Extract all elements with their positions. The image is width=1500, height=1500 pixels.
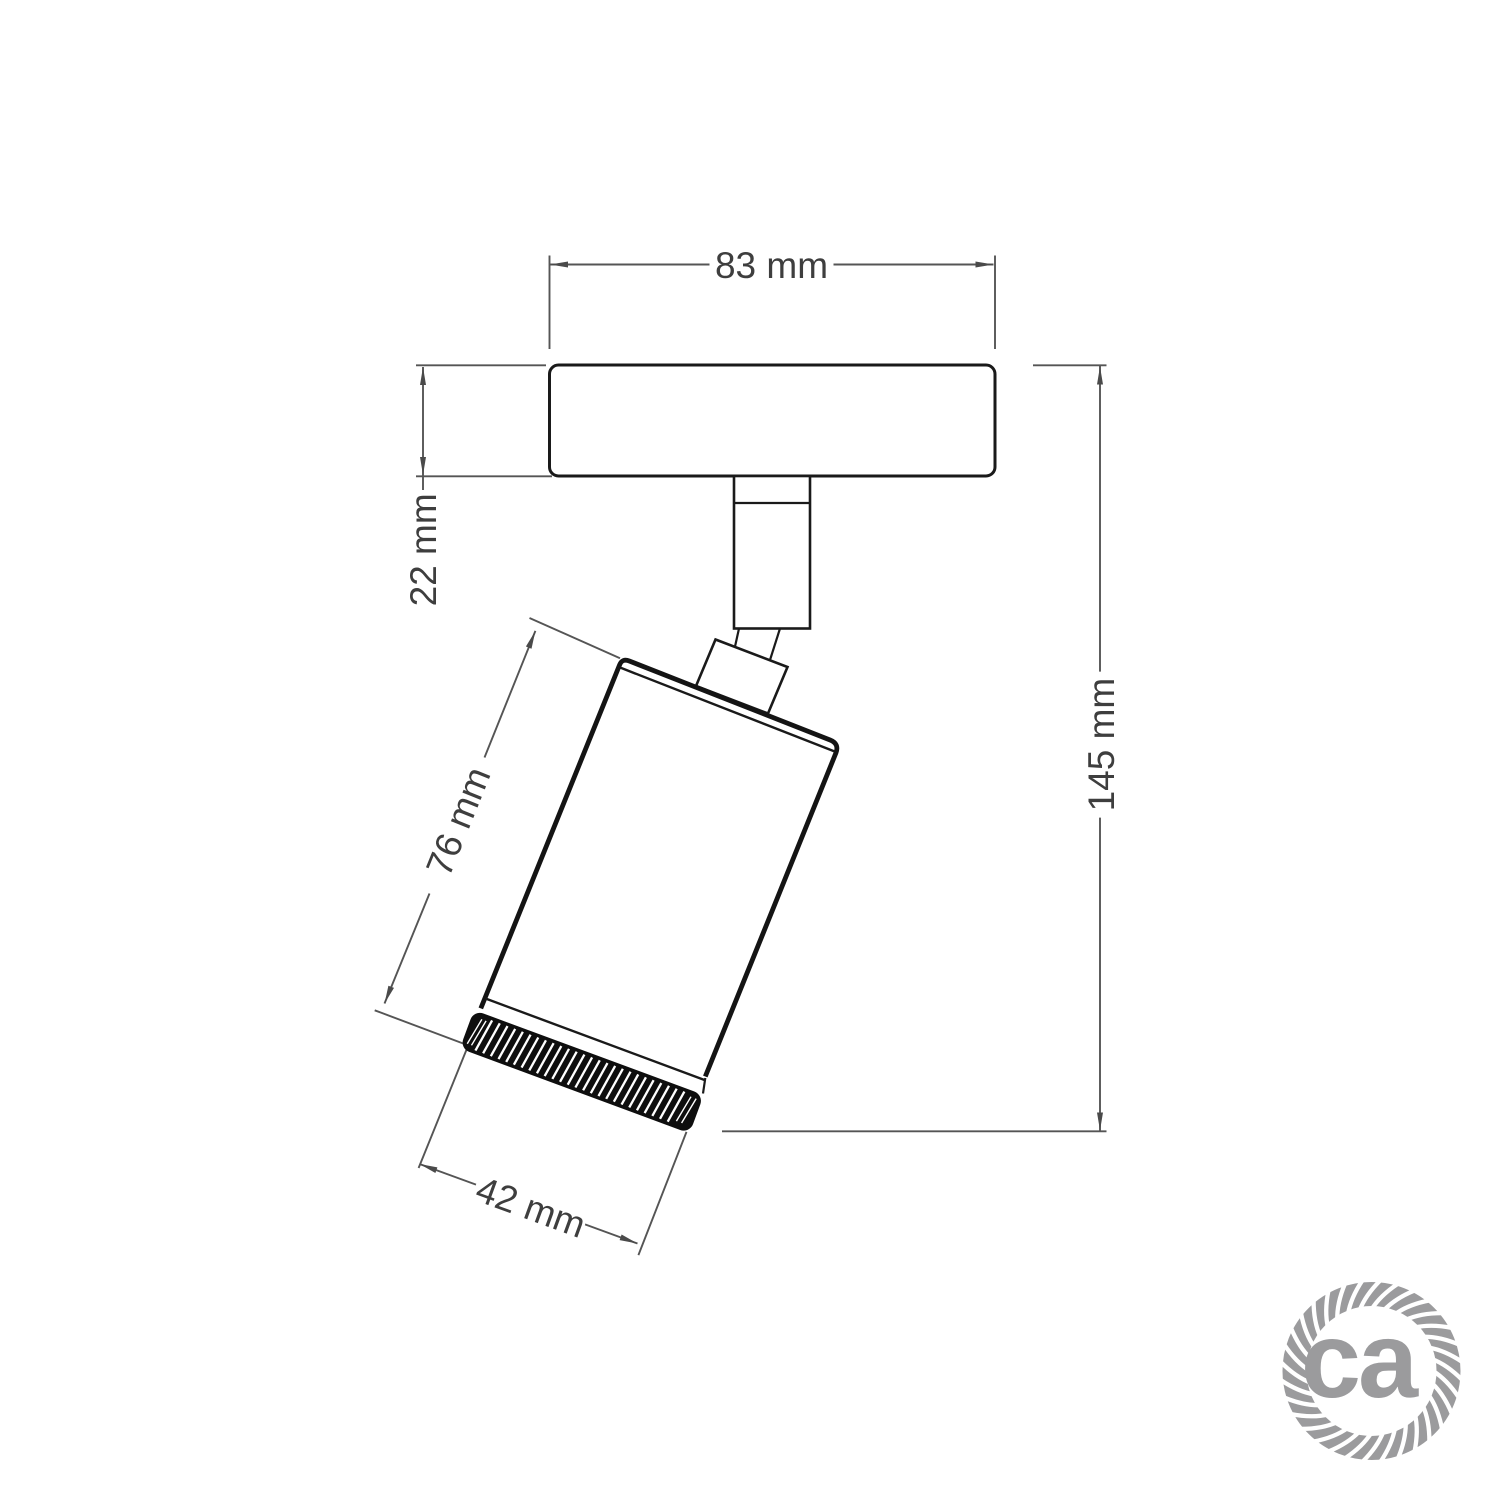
svg-text:ca: ca (1301, 1299, 1419, 1420)
svg-text:83 mm: 83 mm (715, 245, 828, 286)
svg-text:22 mm: 22 mm (403, 493, 444, 606)
svg-text:145 mm: 145 mm (1081, 678, 1122, 812)
